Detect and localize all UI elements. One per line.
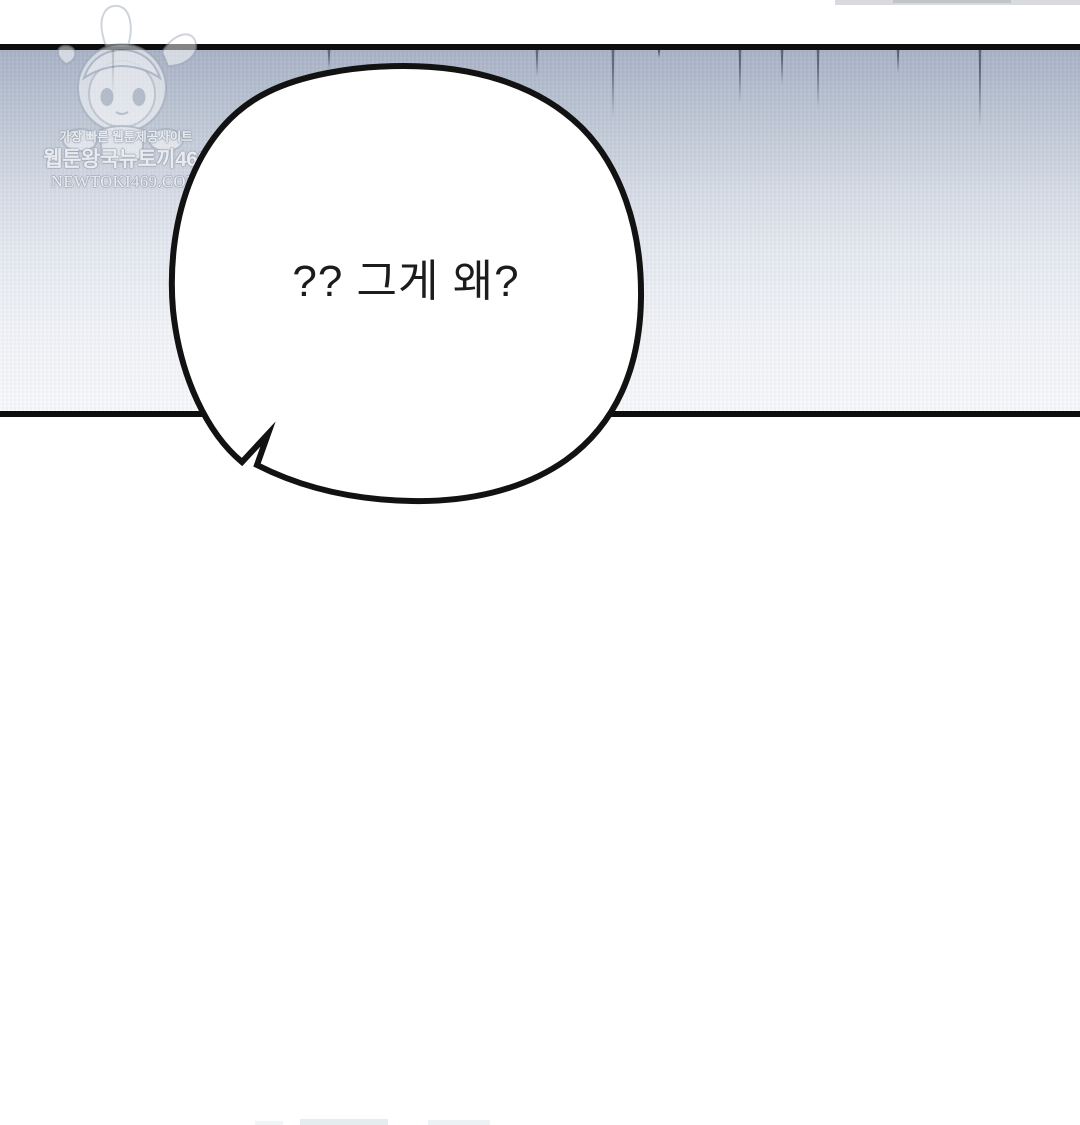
watermark-site-url: NEWTOKI469.COM	[36, 172, 216, 192]
rain-streak	[328, 50, 331, 70]
rain-streak	[536, 50, 539, 77]
rain-streak	[979, 50, 982, 128]
adjacent-panel-fragment	[893, 0, 1011, 3]
rain-streak	[658, 50, 661, 58]
adjacent-panel-fragment	[255, 1121, 283, 1125]
rain-streak	[612, 50, 615, 118]
rain-streak	[781, 50, 784, 85]
speech-bubble-text: ?? 그게 왜?	[170, 257, 642, 307]
comic-page: 가장 빠른 웹툰제공사이트 웹툰왕국뉴토끼469 NEWTOKI469.COM …	[0, 0, 1080, 1125]
rain-streak	[817, 50, 820, 108]
rain-streak	[897, 50, 900, 73]
adjacent-panel-fragment	[428, 1120, 490, 1125]
adjacent-panel-fragment	[300, 1119, 388, 1125]
rain-streak	[739, 50, 742, 103]
watermark-site-name: 웹툰왕국뉴토끼469	[36, 143, 216, 173]
watermark: 가장 빠른 웹툰제공사이트 웹툰왕국뉴토끼469 NEWTOKI469.COM	[36, 0, 216, 210]
panel-bottom-border	[0, 411, 1080, 417]
